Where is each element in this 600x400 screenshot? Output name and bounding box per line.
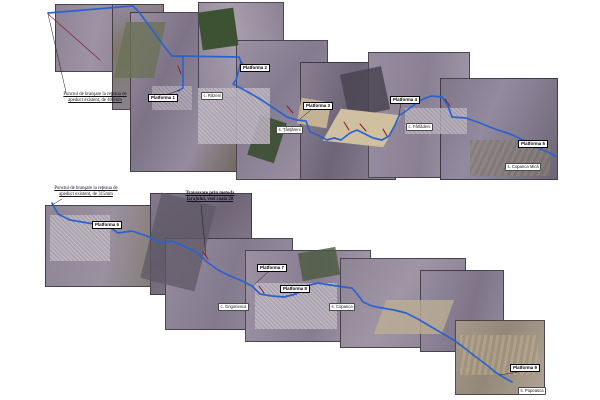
platform-label-7: Platforma 7 [257,264,287,272]
village-label: c. Grigorievca [218,303,249,311]
platform-label-2: Platforma 2 [240,64,270,72]
village-label: c. Fârlădeni [406,123,433,131]
note-line: Traversare prin metoda [176,191,244,197]
platform-label-6: Platforma 6 [92,221,122,229]
village-label: s. Popeasca [518,387,546,395]
note-line: apeduct existent, de 400mm [58,98,132,104]
bottom-start-note: Punctul de branşare la reţeaua de apeduc… [46,186,126,197]
route-overlay [0,0,600,400]
pipeline-spur-top [172,56,183,91]
village-label: s. Ţânţăreni [276,126,303,134]
note-line: forajului, vezi coala 20 [176,197,244,203]
village-label: c. Răzeni [201,92,223,100]
note-line: apeduct existent, de 315mm [46,192,126,198]
pipeline-route-top [48,6,557,157]
top-start-note: Punctul de branşare la reţeaua de apeduc… [58,92,132,103]
crossing-note: Traversare prin metoda forajului, vezi c… [176,191,244,202]
platform-label-1: Platforma 1 [148,94,178,102]
note-line: Punctul de branşare la reţeaua de [58,92,132,98]
platform-label-8: Platforma 8 [280,285,310,293]
platform-label-5: Platforma 5 [518,140,548,148]
map-document: Punctul de branşare la reţeaua de apeduc… [0,0,600,400]
platform-label-9: Platforma 9 [510,364,540,372]
village-label: s. Copanca [329,303,355,311]
platform-label-3: Platforma 3 [303,102,333,110]
platform-label-4: Platforma 4 [390,96,420,104]
note-line: Punctul de branşare la reţeaua de [46,186,126,192]
crossing-markers [48,14,450,293]
village-label: s. Copanca Mică [505,163,541,171]
